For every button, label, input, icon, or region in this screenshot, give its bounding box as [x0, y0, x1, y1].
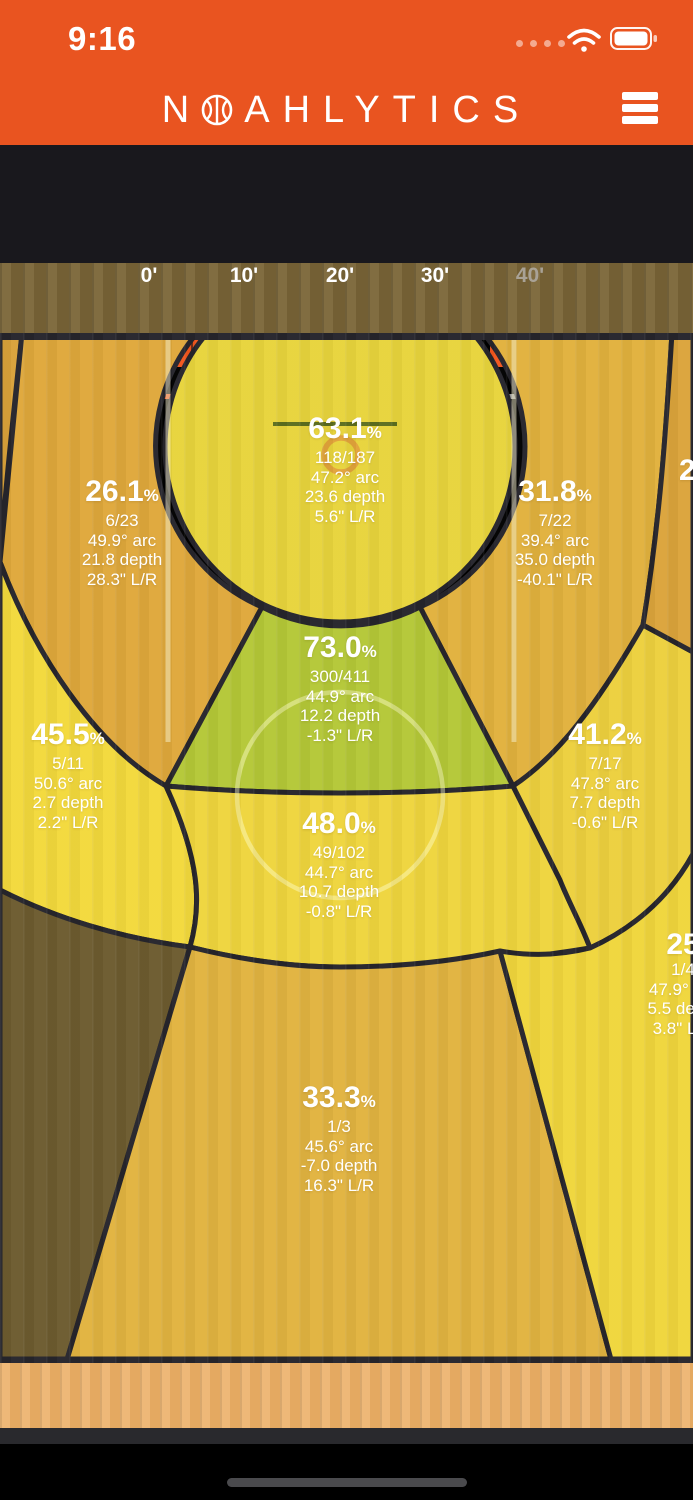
app-header: 9:16 N AHLYTICS	[0, 0, 693, 145]
footer-dark-strip	[0, 1428, 693, 1444]
slider-label-20: 20'	[326, 264, 354, 288]
battery-icon	[610, 27, 658, 51]
brand-text-rest: AHLYTICS	[244, 86, 531, 134]
wifi-icon	[566, 27, 602, 53]
slider-label-40: 40'	[516, 264, 544, 288]
basketball-icon	[200, 93, 234, 127]
brand-text-n: N	[162, 86, 202, 134]
toolbar	[0, 145, 693, 263]
cellular-signal-icon	[516, 40, 565, 47]
shot-chart-court	[0, 333, 693, 1363]
status-time: 9:16	[68, 20, 136, 58]
court-apron-strip	[0, 1363, 693, 1428]
slider-label-30: 30'	[421, 264, 449, 288]
hamburger-menu-icon[interactable]	[622, 92, 658, 124]
brand-logo: N AHLYTICS	[0, 86, 693, 134]
home-indicator[interactable]	[227, 1478, 467, 1487]
slider-label-0: 0'	[141, 264, 158, 288]
slider-label-10: 10'	[230, 264, 258, 288]
